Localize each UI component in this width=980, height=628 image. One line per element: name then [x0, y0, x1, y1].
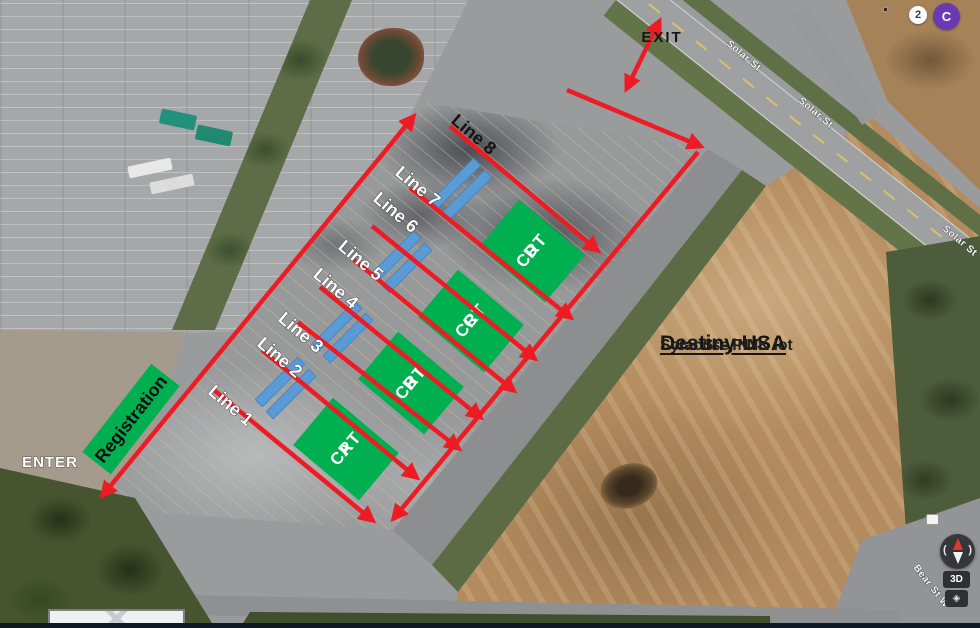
compass-north-needle	[953, 538, 963, 550]
apps-grid-icon[interactable]	[884, 8, 900, 24]
compass-left-tick: (	[943, 544, 947, 556]
notification-badge[interactable]: 2	[909, 6, 927, 24]
3d-toggle-button[interactable]: 3D	[943, 571, 970, 588]
satellite-map-canvas[interactable]: CRT A CRT B CRT C CRT D Registration	[0, 0, 980, 628]
location-city: Syracuse, NY	[660, 336, 759, 355]
retention-pond	[358, 28, 424, 86]
bottom-window-edge	[0, 623, 980, 628]
notification-count: 2	[915, 9, 921, 21]
account-avatar[interactable]: C	[933, 3, 960, 30]
3d-button-label: 3D	[950, 574, 963, 585]
diamond-icon: ◈	[953, 593, 961, 604]
compass-icon[interactable]: ( )	[940, 534, 975, 569]
view-diamond-button[interactable]: ◈	[945, 590, 968, 607]
avatar-initial: C	[942, 9, 951, 24]
route-shield-badge	[926, 514, 939, 525]
compass-right-tick: )	[968, 544, 972, 556]
compass-south-needle	[953, 552, 963, 564]
